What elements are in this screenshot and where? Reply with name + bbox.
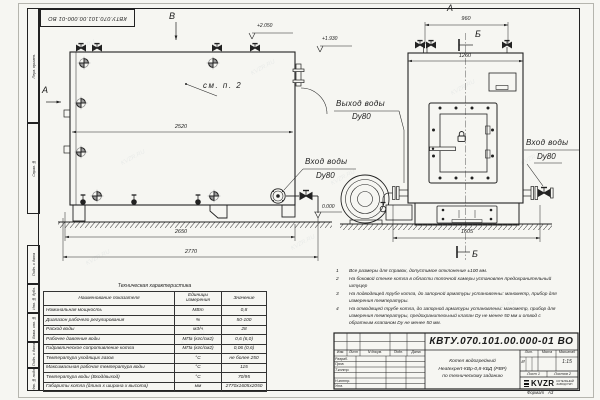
section-label-a-front: А — [443, 4, 457, 13]
note-text: На боковой стенке котла в области топочн… — [349, 277, 576, 291]
note-number: 1 — [336, 269, 349, 276]
role-utv: Утв. — [335, 384, 355, 388]
table-row: Диапазон рабочего регулирования%50-100 — [44, 315, 267, 325]
table-row: Температура воды (Вход/выход)°С70/95 — [44, 373, 267, 383]
title-block-doc-number: КВТУ.070.101.00.000-01 ВО — [425, 333, 578, 350]
tech-characteristics: Техническая характеристика Наименование … — [43, 283, 266, 392]
param-unit: °С — [175, 354, 222, 364]
role-razrab: Разраб. — [335, 357, 355, 361]
col-izm: Изм. — [334, 351, 347, 355]
elevation-zero: 0.000 — [322, 205, 335, 210]
col-list: Лист — [347, 351, 360, 355]
inlet-water-front-label: Вход воды — [526, 139, 568, 147]
elevation-top: +2.050 — [257, 24, 272, 29]
door-bolts — [432, 107, 494, 180]
logo-bars-icon — [524, 380, 529, 387]
tech-header-name: Наименование показателя — [44, 291, 175, 306]
param-unit: МПа (кгс/см2) — [175, 344, 222, 354]
lit-label: Лит. — [520, 351, 538, 355]
section-label-b-top: Б — [475, 30, 481, 39]
section-label-a-side: А — [42, 86, 48, 95]
table-row: Габариты котла (длина х ширина х высота)… — [44, 382, 267, 392]
param-value: 28 — [222, 325, 267, 335]
param-value: 2770х1605х2050 — [222, 382, 267, 392]
dim-front-base: 1605 — [450, 230, 484, 236]
col-ndokum: N докум. — [360, 351, 390, 355]
param-name: Диапазон рабочего регулирования — [44, 315, 175, 325]
table-row: Номинальная мощностьМВт0,8 — [44, 306, 267, 316]
note-item: 4 На отводящей трубе котла, до запорной … — [336, 307, 576, 328]
inlet-water-side-label: Вход воды — [305, 158, 347, 166]
param-name: Температура воды (Вход/выход) — [44, 373, 175, 383]
param-unit: °С — [175, 373, 222, 383]
table-row: Гидравлическое сопротивление котлаМПа (к… — [44, 344, 267, 354]
role-nkontr: Н.контр. — [335, 379, 355, 383]
blueprint-sheet: { "watermark": "KVZR.RU", "sheet": { "do… — [0, 0, 600, 400]
note-text: На отводящей трубе котла, до запорной ар… — [349, 307, 576, 328]
param-value: не более 250 — [222, 354, 267, 364]
format-label: Формат — [527, 391, 544, 396]
param-value: 0,8 — [222, 306, 267, 316]
param-unit: мм — [175, 382, 222, 392]
note-text: На подводящей трубе котла, до запорной а… — [349, 292, 576, 306]
role-tkontr: Т.контр. — [335, 368, 355, 372]
param-unit: м3/ч — [175, 325, 222, 335]
tech-table: Наименование показателя Единицы измерени… — [43, 291, 267, 393]
product-name-line: Heatexpert-КВр-0,8-КБД (РВР) — [438, 366, 506, 374]
note-number: 3 — [336, 292, 349, 306]
section-label-b-bottom: Б — [472, 250, 478, 259]
note-item: 3 На подводящей трубе котла, до запорной… — [336, 292, 576, 306]
notes-block: 1 Все размеры для справок, допустимое от… — [336, 269, 576, 329]
param-unit: % — [175, 315, 222, 325]
product-name: Котел водогрейный Heatexpert-КВр-0,8-КБД… — [427, 351, 518, 388]
param-value: 0,06 (0,6) — [222, 344, 267, 354]
tech-header-unit: Единицы измерения — [175, 291, 222, 306]
ground-side — [58, 222, 332, 228]
manufacturer-logo: KVZR КОТЕЛЬНЫЙ ЗАВОД РЭП — [520, 378, 578, 389]
param-value: 50-100 — [222, 315, 267, 325]
role-prov: Пров. — [335, 362, 355, 366]
logo-subtitle-line: ЗАВОД РЭП — [556, 383, 574, 386]
scale-label: Масштаб — [556, 351, 578, 355]
sheets-total: Листов 2 — [547, 372, 578, 376]
param-name: Номинальная мощность — [44, 306, 175, 316]
param-value: 70/95 — [222, 373, 267, 383]
dim-side-mid: 2650 — [160, 230, 202, 236]
table-row: Максимальная рабочая температура воды°С1… — [44, 363, 267, 373]
product-name-line: Котел водогрейный — [449, 358, 496, 366]
inlet-water-front-dn: Dy80 — [537, 153, 556, 161]
param-unit: МПа (кгс/см2) — [175, 335, 222, 345]
logo-text: KVZR — [531, 379, 554, 388]
outlet-water-label: Выход воды — [336, 100, 385, 108]
dim-front-body: 1260 — [450, 54, 480, 60]
param-name: Гидравлическое сопротивление котла — [44, 344, 175, 354]
dim-side-total: 2770 — [170, 250, 212, 256]
param-name: Рабочее давление воды — [44, 335, 175, 345]
param-value: 0,6 (6,0) — [222, 335, 267, 345]
view-label-v: В — [169, 12, 175, 21]
tech-table-title: Техническая характеристика — [43, 283, 266, 289]
table-row: Температура уходящих газов°Сне более 250 — [44, 354, 267, 364]
table-row: Расход водым3/ч28 — [44, 325, 267, 335]
param-name: Габариты котла (длина х ширина х высота) — [44, 382, 175, 392]
dim-front-top: 960 — [451, 17, 481, 23]
tech-table-header: Наименование показателя Единицы измерени… — [44, 291, 267, 306]
see-note-ref: см. п. 2 — [203, 82, 242, 90]
param-name: Максимальная рабочая температура воды — [44, 363, 175, 373]
param-value: 115 — [222, 363, 267, 373]
param-unit: МВт — [175, 306, 222, 316]
note-number: 2 — [336, 277, 349, 291]
dim-side-inner: 2520 — [160, 125, 202, 131]
col-data: Дата — [407, 351, 425, 355]
sheet-number: Лист 1 — [520, 372, 547, 376]
elevation-mid: +1.930 — [322, 37, 337, 42]
note-text: Все размеры для справок, допустимое откл… — [349, 269, 576, 276]
note-item: 2 На боковой стенке котла в области топо… — [336, 277, 576, 291]
format-value: А3 — [548, 391, 553, 396]
param-name: Температура уходящих газов — [44, 354, 175, 364]
table-row: Рабочее давление водыМПа (кгс/см2)0,6 (6… — [44, 335, 267, 345]
tech-header-value: Значение — [222, 291, 267, 306]
lit-value: И — [520, 360, 526, 365]
mass-label: Масса — [538, 351, 556, 355]
lock-icon — [458, 132, 465, 142]
note-item: 1 Все размеры для справок, допустимое от… — [336, 269, 576, 276]
outlet-water-dn: Dy80 — [352, 113, 371, 121]
inlet-water-side-dn: Dy80 — [316, 172, 335, 180]
product-name-line: по техническому заданию — [442, 373, 502, 381]
col-podp: Подп. — [390, 351, 407, 355]
note-number: 4 — [336, 307, 349, 328]
ground-front — [340, 224, 552, 230]
scale-value: 1:15 — [556, 360, 578, 366]
param-unit: °С — [175, 363, 222, 373]
logo-subtitle: КОТЕЛЬНЫЙ ЗАВОД РЭП — [556, 380, 574, 386]
param-name: Расход воды — [44, 325, 175, 335]
blower-fan — [341, 175, 412, 224]
